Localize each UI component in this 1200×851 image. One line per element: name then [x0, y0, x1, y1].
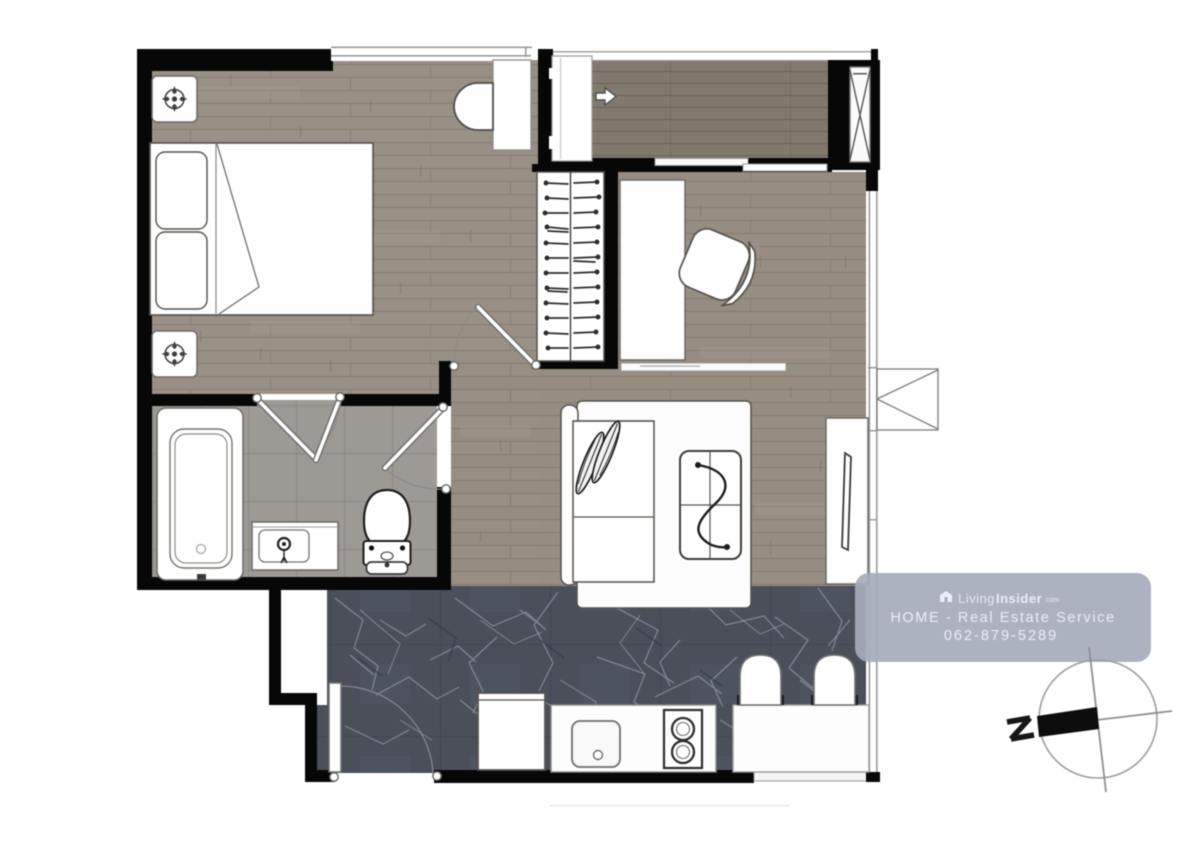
svg-text:HOME - Real Estate Service: HOME - Real Estate Service [890, 610, 1115, 626]
svg-text:.com: .com [1044, 597, 1059, 604]
svg-text:Insider: Insider [996, 591, 1042, 606]
svg-text:Living: Living [958, 591, 995, 606]
svg-text:062-879-5289: 062-879-5289 [944, 628, 1058, 644]
